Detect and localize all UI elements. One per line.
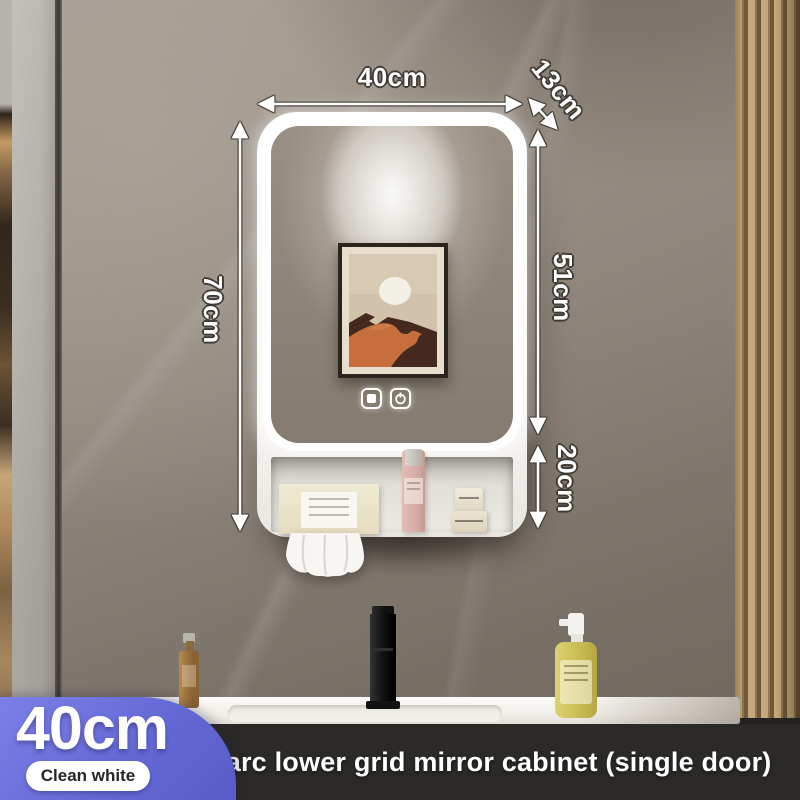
- cosmetic-bottle-label: [404, 478, 423, 504]
- sink-basin: [228, 705, 502, 722]
- faucet-base: [366, 701, 400, 709]
- power-icon: [390, 388, 411, 409]
- soap-dispenser-bottle: [555, 642, 597, 718]
- open-shelf: [271, 457, 513, 532]
- product-photo: 40cm 70cm 51cm 20cm 13cm Smart arc lower…: [0, 0, 800, 800]
- cream-jar-large: [451, 511, 487, 532]
- soap-dispenser-pump: [568, 613, 584, 636]
- size-badge-label: 40cm: [16, 693, 168, 763]
- perfume-bottle: [179, 651, 199, 708]
- cream-jar-small: [455, 488, 483, 512]
- soap-label: [560, 660, 592, 704]
- defog-icon-inner: [367, 394, 376, 403]
- black-faucet: [370, 614, 396, 708]
- mirror-reflection: [271, 126, 513, 443]
- finish-pill: Clean white: [26, 761, 150, 791]
- power-glyph: [394, 392, 407, 405]
- finish-pill-label: Clean white: [41, 766, 135, 786]
- wood-slat-panel: [735, 0, 800, 724]
- scalloped-cup: [284, 533, 366, 581]
- marble-pillar: [12, 0, 55, 724]
- tissue-box: [279, 484, 379, 534]
- cosmetic-bottle: [402, 450, 425, 532]
- framed-artwork: [338, 243, 448, 378]
- led-mirror-door: [263, 118, 521, 451]
- cosmetic-bottle-cap: [405, 449, 422, 466]
- mirror-cabinet: [257, 112, 527, 537]
- wall-seam: [55, 0, 62, 724]
- tissue-box-label: [301, 492, 357, 528]
- defog-icon: [361, 388, 382, 409]
- lit-alcove-strip: [0, 0, 12, 724]
